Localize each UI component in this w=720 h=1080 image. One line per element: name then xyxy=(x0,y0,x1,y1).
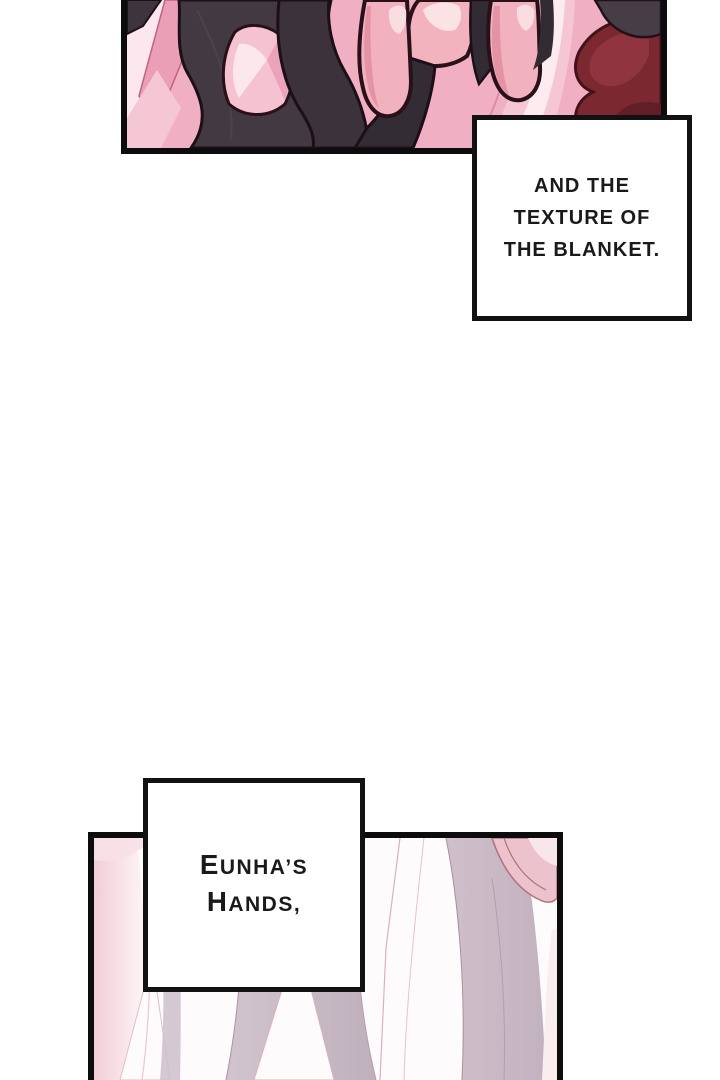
caption-line: THE BLANKET. xyxy=(504,234,660,266)
caption-line: AND THE xyxy=(534,170,630,202)
caption-line: EUNHA’S xyxy=(200,848,308,885)
caption-eunhas-hands: EUNHA’S HANDS, xyxy=(143,778,365,992)
caption-line: HANDS, xyxy=(207,885,301,922)
caption-blanket-texture: AND THE TEXTURE OF THE BLANKET. xyxy=(472,115,692,321)
comic-page: AND THE TEXTURE OF THE BLANKET. xyxy=(0,0,720,1080)
caption-line: TEXTURE OF xyxy=(514,202,651,234)
